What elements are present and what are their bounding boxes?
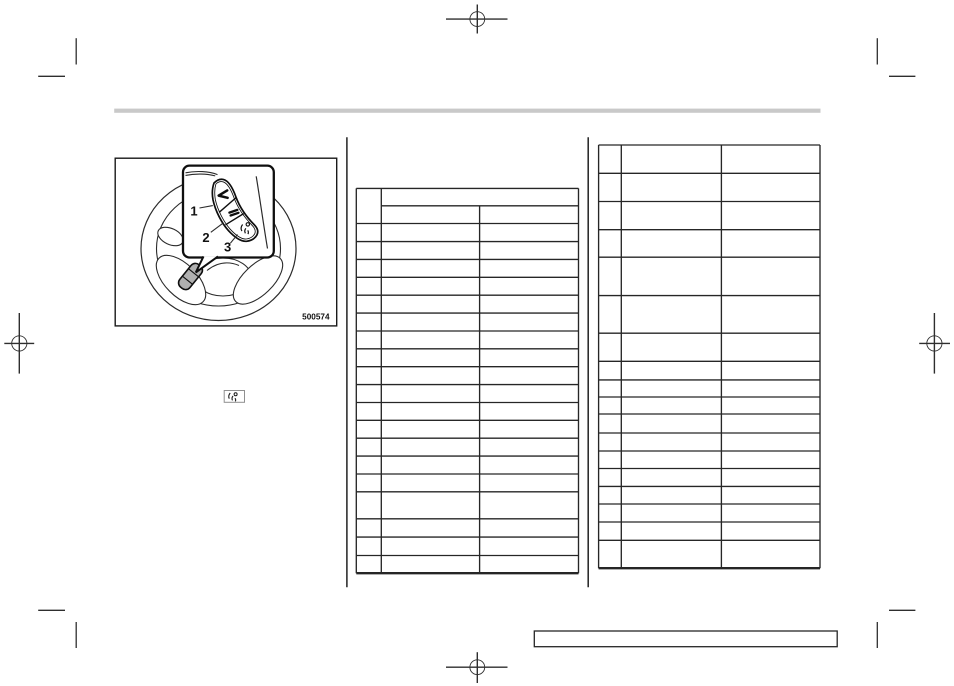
- svg-text:1: 1: [190, 203, 197, 218]
- svg-text:3: 3: [224, 240, 231, 255]
- svg-text:2: 2: [202, 230, 209, 245]
- svg-text:500574: 500574: [302, 313, 330, 322]
